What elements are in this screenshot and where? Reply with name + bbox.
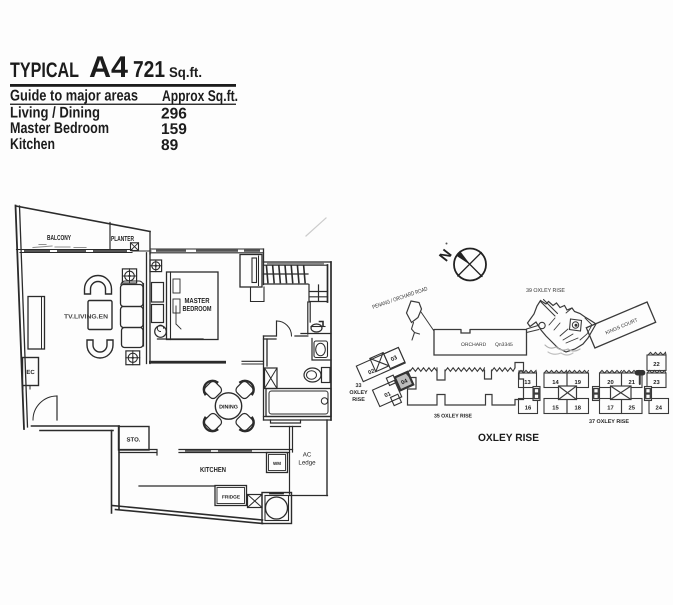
svg-text:KINGS COURT: KINGS COURT bbox=[605, 317, 639, 336]
svg-text:Approx Sq.ft.: Approx Sq.ft. bbox=[162, 88, 238, 105]
svg-text:25: 25 bbox=[629, 405, 636, 412]
svg-text:Kitchen: Kitchen bbox=[10, 136, 55, 153]
svg-text:BALCONY: BALCONY bbox=[47, 233, 71, 242]
svg-text:24: 24 bbox=[656, 405, 663, 412]
svg-text:13: 13 bbox=[524, 379, 531, 386]
svg-text:15: 15 bbox=[552, 406, 559, 412]
svg-text:23: 23 bbox=[653, 379, 660, 386]
svg-text:17: 17 bbox=[607, 406, 613, 412]
svg-text:A4: A4 bbox=[89, 51, 128, 84]
svg-text:20: 20 bbox=[607, 379, 613, 386]
svg-text:Ledge: Ledge bbox=[298, 460, 316, 467]
svg-text:296: 296 bbox=[161, 106, 187, 123]
svg-text:STO.: STO. bbox=[127, 437, 141, 444]
svg-text:33: 33 bbox=[356, 383, 362, 389]
svg-text:RISE: RISE bbox=[352, 397, 365, 403]
svg-text:Guide to major areas: Guide to major areas bbox=[10, 88, 138, 105]
svg-text:89: 89 bbox=[161, 137, 179, 154]
svg-text:TV.LIVING.EN: TV.LIVING.EN bbox=[64, 314, 109, 321]
svg-text:OXLEY: OXLEY bbox=[349, 390, 368, 396]
svg-text:TYPICAL: TYPICAL bbox=[10, 59, 79, 82]
svg-text:WM: WM bbox=[273, 461, 281, 466]
svg-text:EC: EC bbox=[26, 369, 35, 376]
svg-text:DINING: DINING bbox=[219, 405, 238, 411]
svg-text:Qn3345: Qn3345 bbox=[495, 342, 513, 348]
svg-text:Living / Dining: Living / Dining bbox=[10, 105, 100, 122]
svg-text:AC: AC bbox=[303, 452, 312, 459]
svg-text:16: 16 bbox=[525, 405, 532, 412]
svg-text:Master Bedroom: Master Bedroom bbox=[10, 120, 109, 137]
svg-text:ORCHARD: ORCHARD bbox=[461, 342, 487, 348]
svg-text:14: 14 bbox=[552, 380, 559, 386]
svg-text:KITCHEN: KITCHEN bbox=[200, 465, 226, 474]
svg-text:721: 721 bbox=[133, 56, 165, 82]
svg-text:FRIDGE: FRIDGE bbox=[222, 495, 241, 501]
svg-text:OXLEY RISE: OXLEY RISE bbox=[478, 432, 539, 444]
svg-text:03: 03 bbox=[390, 354, 399, 363]
svg-text:39 OXLEY RISE: 39 OXLEY RISE bbox=[526, 288, 565, 294]
svg-text:35 OXLEY RISE: 35 OXLEY RISE bbox=[434, 414, 472, 420]
svg-text:N: N bbox=[437, 247, 456, 265]
svg-text:21: 21 bbox=[629, 379, 636, 386]
svg-text:PLANTER: PLANTER bbox=[111, 234, 135, 243]
svg-text:BEDROOM: BEDROOM bbox=[183, 304, 212, 313]
svg-text:18: 18 bbox=[575, 405, 582, 412]
svg-text:Sq.ft.: Sq.ft. bbox=[169, 64, 202, 80]
svg-text:159: 159 bbox=[161, 121, 187, 138]
svg-text:22: 22 bbox=[653, 361, 659, 368]
svg-text:01: 01 bbox=[383, 390, 392, 399]
svg-text:19: 19 bbox=[575, 379, 582, 386]
svg-text:PENANG / ORCHARD ROAD: PENANG / ORCHARD ROAD bbox=[371, 285, 428, 311]
svg-text:37 OXLEY RISE: 37 OXLEY RISE bbox=[589, 419, 629, 425]
